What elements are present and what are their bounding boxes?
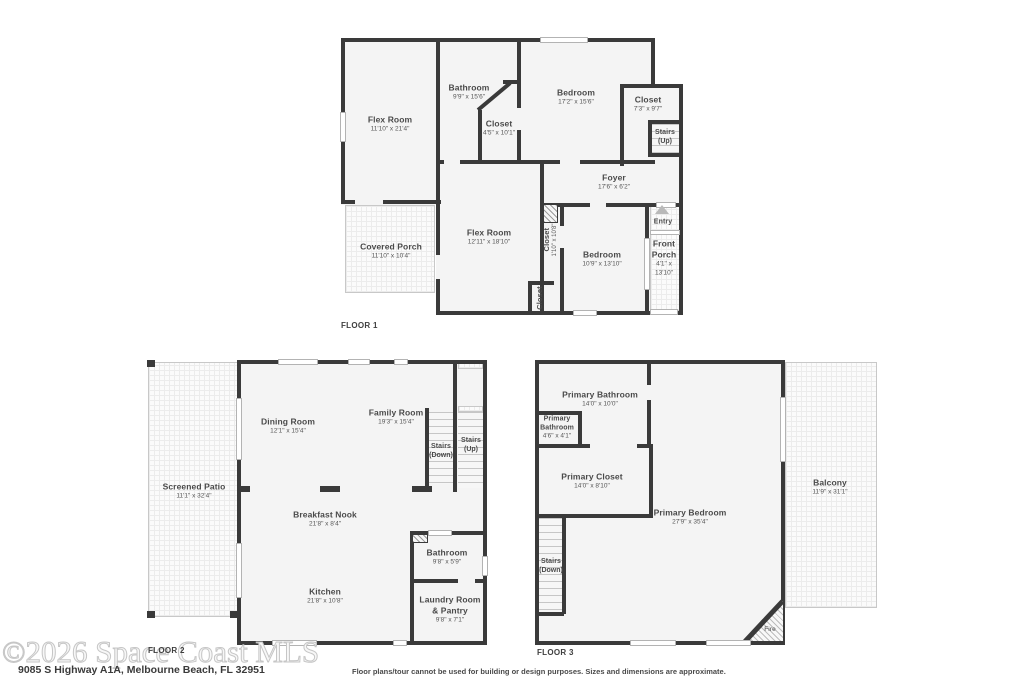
window (393, 640, 407, 646)
window (650, 230, 680, 235)
wall (560, 203, 564, 315)
room-label-primary-closet: Primary Closet 14'0" x 8'10" (561, 471, 622, 490)
window (706, 640, 751, 646)
door-opening (560, 160, 580, 164)
wall (517, 38, 521, 164)
window (278, 359, 318, 365)
room-label-covered-porch: Covered Porch 11'10" x 10'4" (360, 241, 422, 260)
door-opening (355, 200, 383, 204)
wall (649, 448, 653, 518)
room-label-breakfast-nook: Breakfast Nook 21'8" x 8'4" (293, 509, 357, 528)
wall (414, 579, 487, 583)
room-label-kitchen: Kitchen 21'8" x 10'8" (307, 586, 343, 605)
entry-arrow-icon (655, 205, 669, 214)
wall (503, 80, 519, 84)
door-opening (517, 108, 521, 130)
room-label-closet-small: Closet (535, 286, 545, 310)
floor-3-label: FLOOR 3 (537, 648, 574, 657)
wall (648, 153, 683, 157)
door-opening (458, 579, 475, 583)
wall (620, 84, 683, 88)
room-label-stairs-down-f3: Stairs (Down) (539, 557, 563, 575)
room-label-bath-closet: Closet 4'5" x 10'1" (483, 118, 515, 137)
wall-stub (147, 360, 155, 367)
door-opening (436, 255, 440, 279)
window (650, 309, 678, 315)
window (236, 398, 242, 460)
room-label-fire: Fire (764, 626, 776, 634)
window (780, 397, 786, 462)
wall (651, 38, 655, 88)
door-opening (590, 203, 606, 207)
door-opening (647, 385, 651, 400)
window (348, 359, 370, 365)
wall (436, 311, 683, 315)
room-label-flex-room-1: Flex Room 11'10" x 21'4" (368, 114, 412, 133)
room-label-laundry: Laundry Room & Pantry 9'8" x 7'1" (417, 595, 483, 626)
room-label-dining-room: Dining Room 12'1" x 15'4" (261, 416, 315, 435)
wall (528, 281, 532, 313)
wall-stub (238, 486, 250, 492)
window (394, 359, 408, 365)
room-label-front-porch: Front Porch 4'1" x 13'10" (647, 239, 681, 278)
wall (620, 84, 624, 166)
window (482, 556, 488, 576)
room-label-closet-ne: Closet 7'3" x 9'7" (634, 94, 662, 113)
wall (483, 360, 487, 645)
wall (537, 612, 564, 616)
chase-hatch (543, 204, 558, 223)
window (573, 310, 597, 316)
room-label-bedroom-2: Bedroom 10'9" x 13'10" (582, 249, 621, 268)
wall-stub (230, 611, 239, 618)
room-label-stairs-down-f2: Stairs (Down) (429, 442, 453, 460)
chase-hatch (412, 534, 428, 543)
room-label-primary-bathroom-small: Primary Bathroom 4'6" x 4'1" (537, 415, 577, 442)
room-label-screened-patio: Screened Patio 11'1" x 32'4" (163, 481, 226, 500)
room-label-balcony: Balcony 11'9" x 31'1" (812, 477, 847, 496)
wall (341, 38, 655, 42)
property-address: 9085 S Highway A1A, Melbourne Beach, FL … (18, 664, 265, 676)
wall-stub (147, 611, 155, 618)
wall (410, 531, 414, 645)
wall (679, 84, 683, 315)
room-label-stairs-up-f2: Stairs (Up) (461, 436, 481, 454)
floor-1-label: FLOOR 1 (341, 321, 378, 330)
disclaimer-text: Floor plans/tour cannot be used for buil… (352, 667, 726, 676)
wall (453, 363, 457, 492)
room-label-bedroom-1: Bedroom 17'2" x 15'6" (557, 87, 595, 106)
wall (528, 281, 554, 285)
wall (535, 360, 785, 364)
window (540, 37, 588, 43)
room-label-bathroom-2: Bathroom 9'8" x 5'9" (427, 547, 468, 566)
window (428, 530, 452, 536)
window (340, 112, 346, 142)
door-opening (444, 160, 460, 164)
wall-stub (320, 486, 340, 492)
wall (578, 411, 582, 448)
room-label-family-room: Family Room 19'3" x 15'4" (369, 407, 423, 426)
floor-plan-page: Flex Room 11'10" x 21'4" Bathroom 9'9" x… (0, 0, 1024, 683)
room-label-primary-bedroom: Primary Bedroom 27'9" x 35'4" (654, 507, 727, 526)
room-label-bathroom-1: Bathroom 9'9" x 15'6" (449, 82, 490, 101)
window (236, 543, 242, 598)
room-label-stairs-up-f1: Stairs (Up) (655, 128, 675, 146)
wall-stub (412, 486, 432, 492)
door-opening (560, 226, 564, 248)
room-label-entry: Entry (654, 217, 672, 226)
room-label-closet-tall: Closet 1'10" x 10'8" (542, 224, 560, 257)
wall (647, 360, 651, 448)
room-label-flex-room-2: Flex Room 12'11" x 18'10" (467, 227, 511, 246)
wall (478, 110, 482, 164)
room-label-foyer: Foyer 17'6" x 6'2" (598, 172, 630, 191)
floor-2-label: FLOOR 2 (148, 646, 185, 655)
room-label-primary-bathroom: Primary Bathroom 14'0" x 10'0" (562, 389, 638, 408)
window (630, 640, 676, 646)
